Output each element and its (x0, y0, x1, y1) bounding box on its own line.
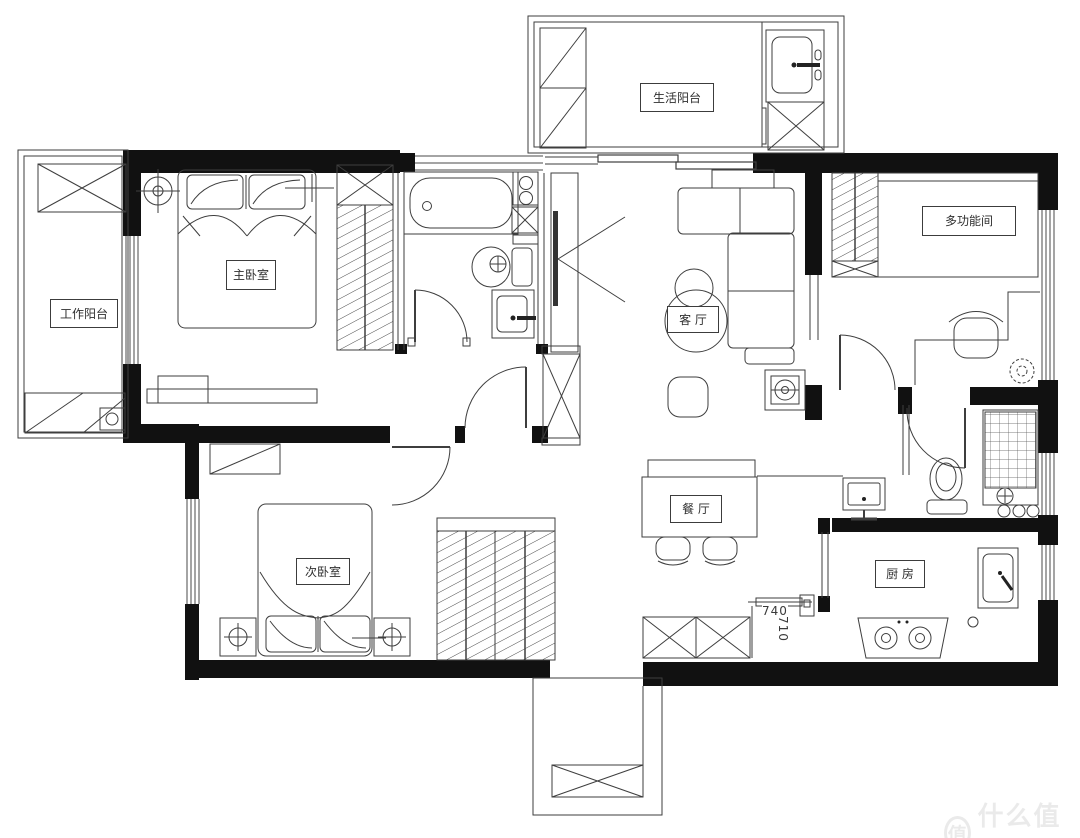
toilet-2-icon (927, 458, 967, 514)
dining-chair-1 (656, 537, 690, 565)
shoe-cabinet-icon (643, 617, 750, 658)
sliding-door-balcony (598, 155, 756, 169)
second-bathroom (903, 405, 1039, 517)
multi-room-door-swing (840, 335, 895, 390)
dresser-2 (210, 444, 280, 474)
kitchen (822, 532, 1018, 658)
desk-chair (949, 312, 1003, 359)
corridor-cabinet-icon (552, 765, 643, 797)
storage-box-icon (38, 164, 126, 212)
toilet-icon (472, 247, 532, 287)
clothes-rack-icon (832, 173, 878, 277)
balcony-sink-icon (766, 30, 824, 102)
room-label-multi-function-room: 多功能间 (922, 206, 1016, 236)
second-bedroom (210, 444, 555, 660)
floor-plan-drawing (0, 0, 1080, 838)
plant-icon (1010, 359, 1034, 383)
vanity-icon (996, 505, 1039, 517)
room-label-work-balcony: 工作阳台 (50, 299, 118, 328)
suite-door-swing (465, 367, 526, 428)
tv-cabinet (551, 173, 625, 352)
gas-valve-icon (968, 617, 978, 627)
washbasin-counter-icon (512, 172, 538, 244)
watermark: 值 什么值得买 (944, 796, 1080, 838)
hallway (392, 346, 580, 505)
floor-plan-canvas: 生活阳台 工作阳台 主卧室 多功能间 客 厅 餐 厅 次卧室 厨 房 740 7… (0, 0, 1080, 838)
dining-room (642, 460, 885, 658)
stove-icon (858, 618, 948, 658)
living-room (545, 157, 805, 417)
dresser (147, 376, 317, 403)
wardrobe-master (337, 165, 393, 350)
wardrobe-2 (437, 518, 555, 660)
floor-outlet-icon (765, 370, 805, 410)
room-label-kitchen: 厨 房 (875, 560, 925, 588)
watermark-text: 什么值得买 (978, 796, 1080, 838)
main-bathroom (398, 172, 544, 350)
shower-icon (983, 410, 1038, 505)
double-bed (178, 170, 334, 328)
bathroom2-door-swing (907, 408, 965, 468)
washing-machine-icon (762, 102, 824, 150)
dining-chair-2 (703, 537, 737, 565)
kitchen-sliding-door (822, 532, 828, 598)
room-label-second-bedroom: 次卧室 (296, 558, 350, 585)
watermark-logo: 值 (944, 816, 971, 838)
desk (915, 292, 1040, 385)
bathtub-icon (404, 172, 518, 234)
ceiling-light-icon (136, 169, 180, 213)
drying-rack-icon (540, 28, 586, 148)
tv-icon (843, 478, 885, 519)
sideboard (648, 460, 755, 477)
entry-corridor (533, 678, 662, 815)
nightstand-left (220, 618, 256, 656)
water-heater-rack-icon (25, 393, 125, 433)
room-label-master-bedroom: 主卧室 (226, 260, 276, 290)
walls (123, 150, 1058, 686)
kitchen-sink-icon (978, 548, 1018, 608)
room-label-life-balcony: 生活阳台 (640, 83, 714, 112)
work-balcony (18, 150, 128, 438)
pouf (668, 377, 708, 417)
room-label-living-room: 客 厅 (667, 306, 719, 333)
second-bedroom-door-swing (392, 447, 450, 505)
sink-icon (492, 290, 536, 338)
nightstand-right (374, 618, 410, 656)
room-label-dining-room: 餐 厅 (670, 495, 722, 523)
dimension-710: 710 (776, 616, 790, 642)
sofa (678, 170, 794, 364)
bathroom-door-swing (408, 290, 470, 346)
